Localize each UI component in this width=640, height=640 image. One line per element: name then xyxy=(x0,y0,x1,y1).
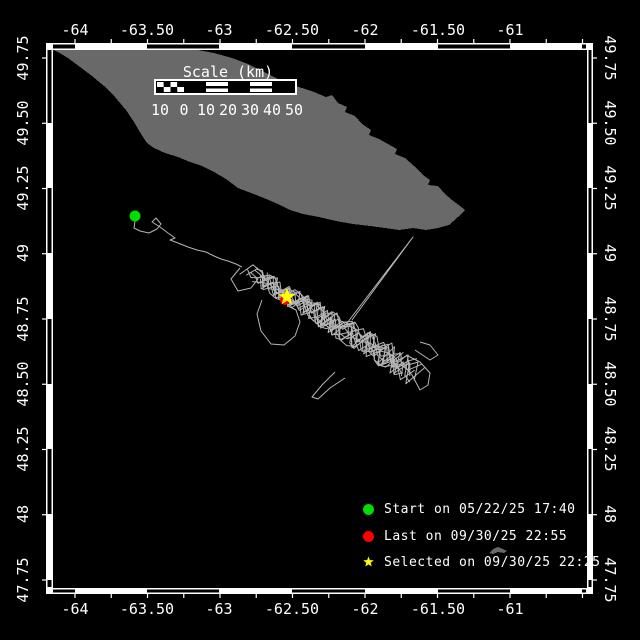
lat-label-left: 48.50 xyxy=(14,361,32,406)
lat-label-left: 48.75 xyxy=(14,296,32,341)
lat-label-right: 49.75 xyxy=(601,35,619,80)
lon-label-top: -64 xyxy=(61,21,88,39)
scale-bar-title: Scale (km) xyxy=(183,63,273,81)
lon-label-top: -62 xyxy=(351,21,378,39)
scale-bar-value: 50 xyxy=(285,101,303,119)
lat-label-right: 47.75 xyxy=(601,557,619,602)
lon-label-bottom: -61.50 xyxy=(411,600,465,618)
legend-selected-row: Selected on 09/30/25 22:25 xyxy=(362,552,601,572)
lon-label-bottom: -61 xyxy=(496,600,523,618)
lat-label-left: 49 xyxy=(14,244,32,262)
lon-label-top: -62.50 xyxy=(265,21,319,39)
start-position-marker[interactable] xyxy=(130,211,141,222)
lat-label-left: 49.25 xyxy=(14,165,32,210)
lon-label-top: -63 xyxy=(205,21,232,39)
lon-label-top: -63.50 xyxy=(120,21,174,39)
lat-label-right: 48 xyxy=(601,505,619,523)
last-legend-icon xyxy=(362,530,375,543)
lat-label-left: 48.25 xyxy=(14,426,32,471)
lat-label-right: 48.75 xyxy=(601,296,619,341)
star-legend-icon xyxy=(362,556,375,569)
scale-bar-value: 30 xyxy=(241,101,259,119)
legend-start-label: Start on 05/22/25 17:40 xyxy=(384,502,576,517)
lon-label-bottom: -62.50 xyxy=(265,600,319,618)
lat-label-right: 48.25 xyxy=(601,426,619,471)
lat-label-left: 49.75 xyxy=(14,35,32,80)
lon-label-bottom: -63 xyxy=(205,600,232,618)
scale-bar-value: 0 xyxy=(179,101,188,119)
scale-bar-value: 40 xyxy=(263,101,281,119)
lon-label-top: -61.50 xyxy=(411,21,465,39)
lat-label-right: 48.50 xyxy=(601,361,619,406)
lon-label-top: -61 xyxy=(496,21,523,39)
scale-bar-value: 20 xyxy=(219,101,237,119)
lat-label-right: 49.25 xyxy=(601,165,619,210)
lat-label-left: 49.50 xyxy=(14,100,32,145)
lat-label-left: 47.75 xyxy=(14,557,32,602)
lat-label-right: 49 xyxy=(601,244,619,262)
lon-label-bottom: -62 xyxy=(351,600,378,618)
scale-bar-value: 10 xyxy=(197,101,215,119)
legend-selected-label: Selected on 09/30/25 22:25 xyxy=(384,555,601,570)
lon-label-bottom: -63.50 xyxy=(120,600,174,618)
start-legend-icon xyxy=(362,503,375,516)
lon-label-bottom: -64 xyxy=(61,600,88,618)
scale-bar-value: 10 xyxy=(151,101,169,119)
legend-last-label: Last on 09/30/25 22:55 xyxy=(384,529,567,544)
lat-label-right: 49.50 xyxy=(601,100,619,145)
tracking-map-screen: -64-64-63.50-63.50-63-63-62.50-62.50-62-… xyxy=(0,0,640,640)
legend-start-row: Start on 05/22/25 17:40 xyxy=(362,499,576,519)
lat-label-left: 48 xyxy=(14,505,32,523)
legend-last-row: Last on 09/30/25 22:55 xyxy=(362,526,567,546)
